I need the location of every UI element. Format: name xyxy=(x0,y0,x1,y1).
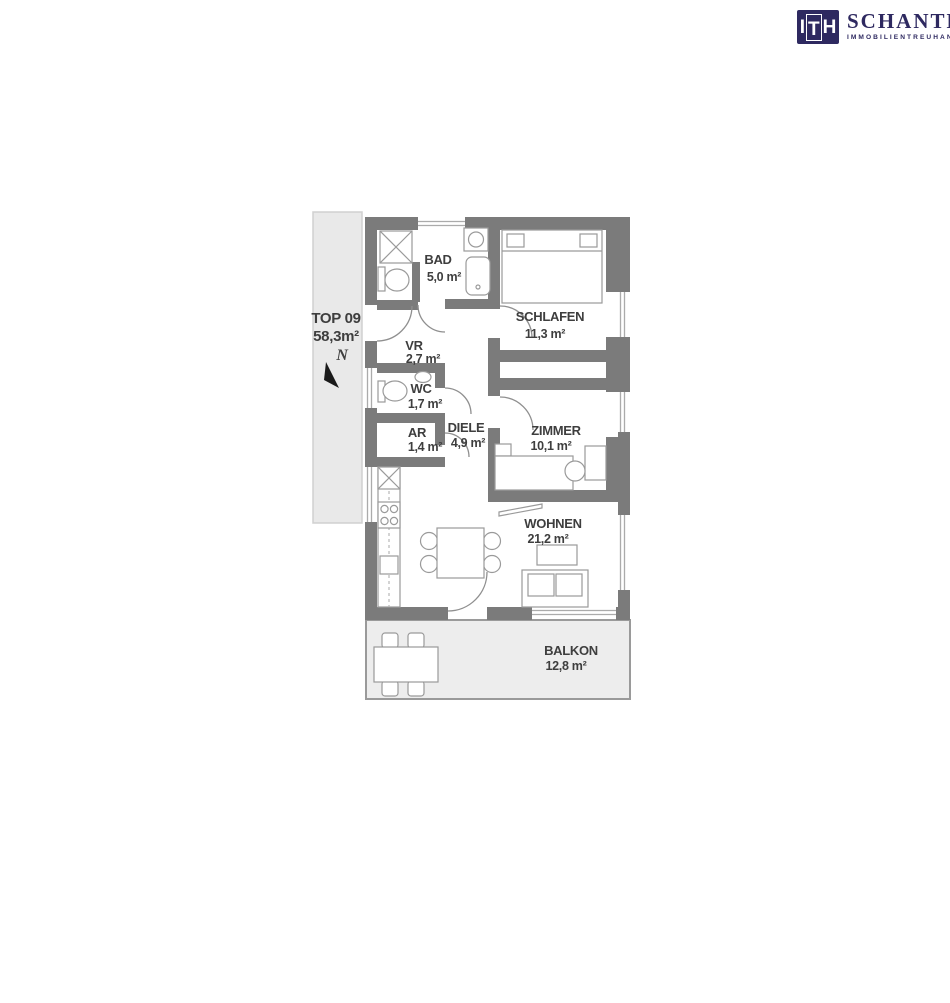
dining-chair xyxy=(484,556,501,573)
desk xyxy=(585,446,606,480)
entrance-door-arc xyxy=(377,306,412,341)
balcony-chair xyxy=(408,681,424,696)
oven xyxy=(380,556,398,574)
room-area-balkon: 12,8 m² xyxy=(546,659,587,673)
adjacent-unit-shade xyxy=(313,212,362,523)
room-label-diele: DIELE xyxy=(448,420,485,435)
room-area-wc: 1,7 m² xyxy=(408,397,442,411)
single-bed xyxy=(495,456,573,490)
north-label: N xyxy=(335,347,349,364)
unit-total-area: 58,3m² xyxy=(313,328,359,345)
room-label-zimmer: ZIMMER xyxy=(531,423,581,438)
sofa-seat xyxy=(556,574,582,596)
sofa-seat xyxy=(528,574,554,596)
pillow xyxy=(495,444,511,456)
coffee-table xyxy=(537,545,577,565)
balcony-chair xyxy=(408,633,424,648)
room-area-zimmer: 10,1 m² xyxy=(531,439,572,453)
room-label-wohnen: WOHNEN xyxy=(524,516,581,531)
room-label-ar: AR xyxy=(408,425,427,440)
toilet-bowl xyxy=(385,269,409,291)
sideboard xyxy=(499,504,542,516)
dining-chair xyxy=(421,533,438,550)
balcony-chair xyxy=(382,633,398,648)
toilet-tank xyxy=(378,267,385,291)
room-label-balkon: BALKON xyxy=(544,643,598,658)
wc-door-arc xyxy=(445,388,471,414)
room-area-ar: 1,4 m² xyxy=(408,440,442,454)
wc-toilet-bowl xyxy=(383,381,407,401)
unit-id: TOP 09 xyxy=(311,310,360,327)
pillow xyxy=(507,234,524,247)
room-area-vr: 2,7 m² xyxy=(406,352,440,366)
floor-plan: N TOP 09 58,3m² BAD 5,0 m² SCHLAFEN 11,3… xyxy=(0,0,950,1003)
room-area-schlafen: 11,3 m² xyxy=(525,327,565,341)
room-label-schlafen: SCHLAFEN xyxy=(516,309,584,324)
bad-door-arc xyxy=(418,305,445,332)
dining-chair xyxy=(484,533,501,550)
dining-chair xyxy=(421,556,438,573)
pillow xyxy=(580,234,597,247)
room-label-vr: VR xyxy=(405,338,423,353)
room-area-diele: 4,9 m² xyxy=(451,436,485,450)
room-area-wohnen: 21,2 m² xyxy=(528,532,569,546)
balcony-chair xyxy=(382,681,398,696)
desk-chair xyxy=(565,461,585,481)
room-label-bad: BAD xyxy=(424,252,451,267)
zimmer-door-arc xyxy=(500,397,533,430)
dining-table xyxy=(437,528,484,578)
balcony-table xyxy=(374,647,438,682)
room-label-wc: WC xyxy=(410,381,432,396)
room-area-bad: 5,0 m² xyxy=(427,270,461,284)
